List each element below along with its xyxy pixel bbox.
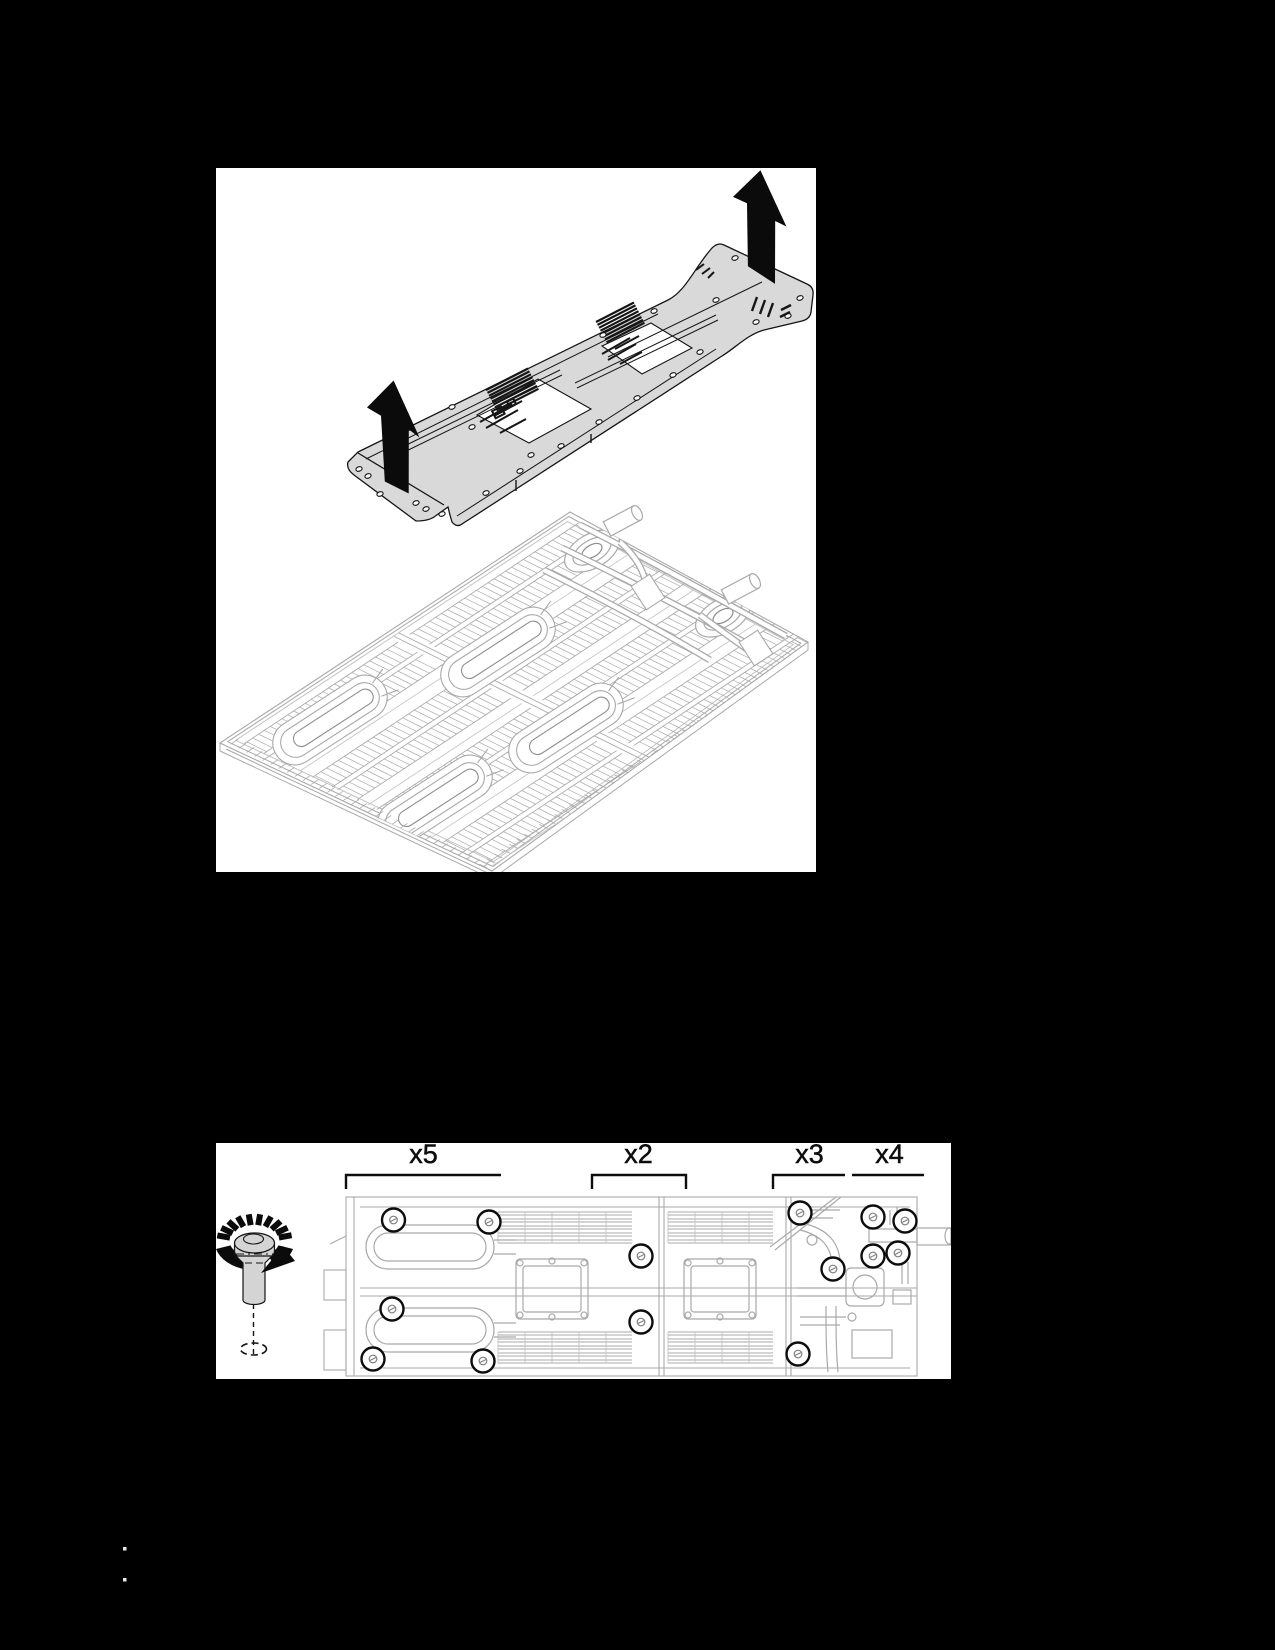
svg-text:x5: x5 [409,1139,438,1169]
svg-text:x3: x3 [795,1139,824,1169]
svg-text:x2: x2 [624,1139,653,1169]
svg-text:x4: x4 [875,1139,904,1169]
